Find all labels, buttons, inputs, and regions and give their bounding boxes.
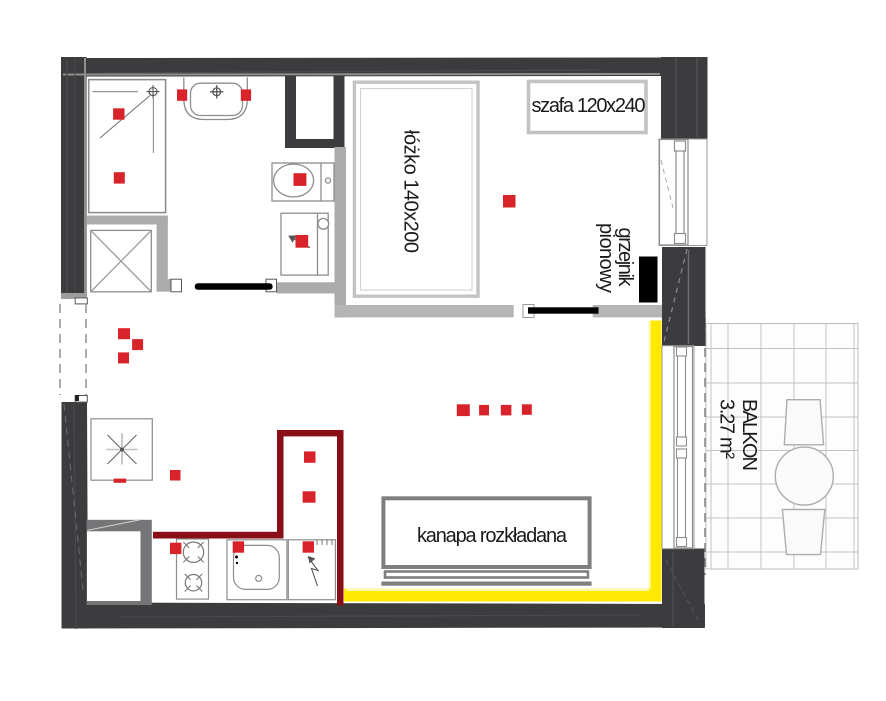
svg-text:BALKON: BALKON (738, 399, 760, 471)
svg-text:kanapa rozkładana: kanapa rozkładana (417, 525, 568, 547)
svg-text:łóżko 140x200: łóżko 140x200 (400, 130, 422, 253)
svg-text:pionowy: pionowy (595, 223, 617, 293)
svg-text:szafa 120x240: szafa 120x240 (532, 95, 646, 117)
svg-text:3.27 m²: 3.27 m² (716, 399, 738, 459)
